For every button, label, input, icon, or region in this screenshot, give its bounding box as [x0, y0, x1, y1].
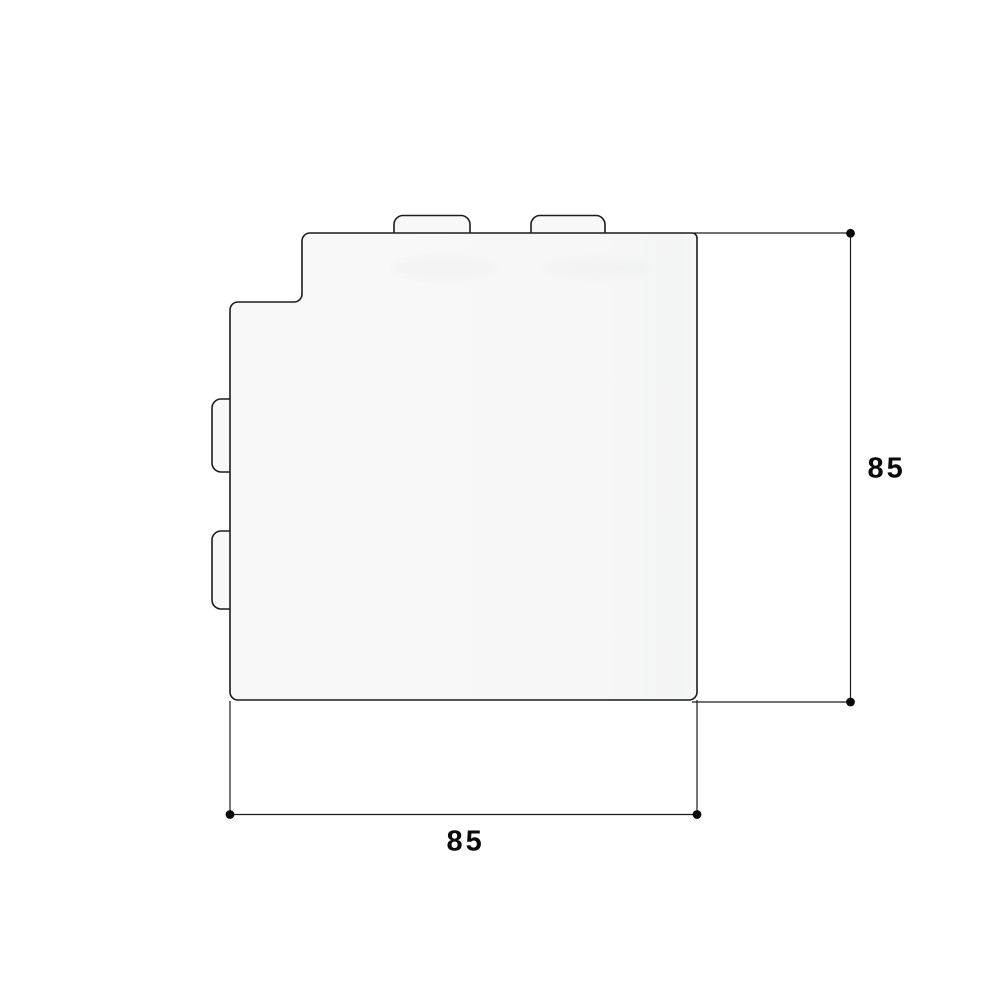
svg-text:85: 85 [868, 453, 906, 485]
svg-text:85: 85 [447, 826, 485, 858]
